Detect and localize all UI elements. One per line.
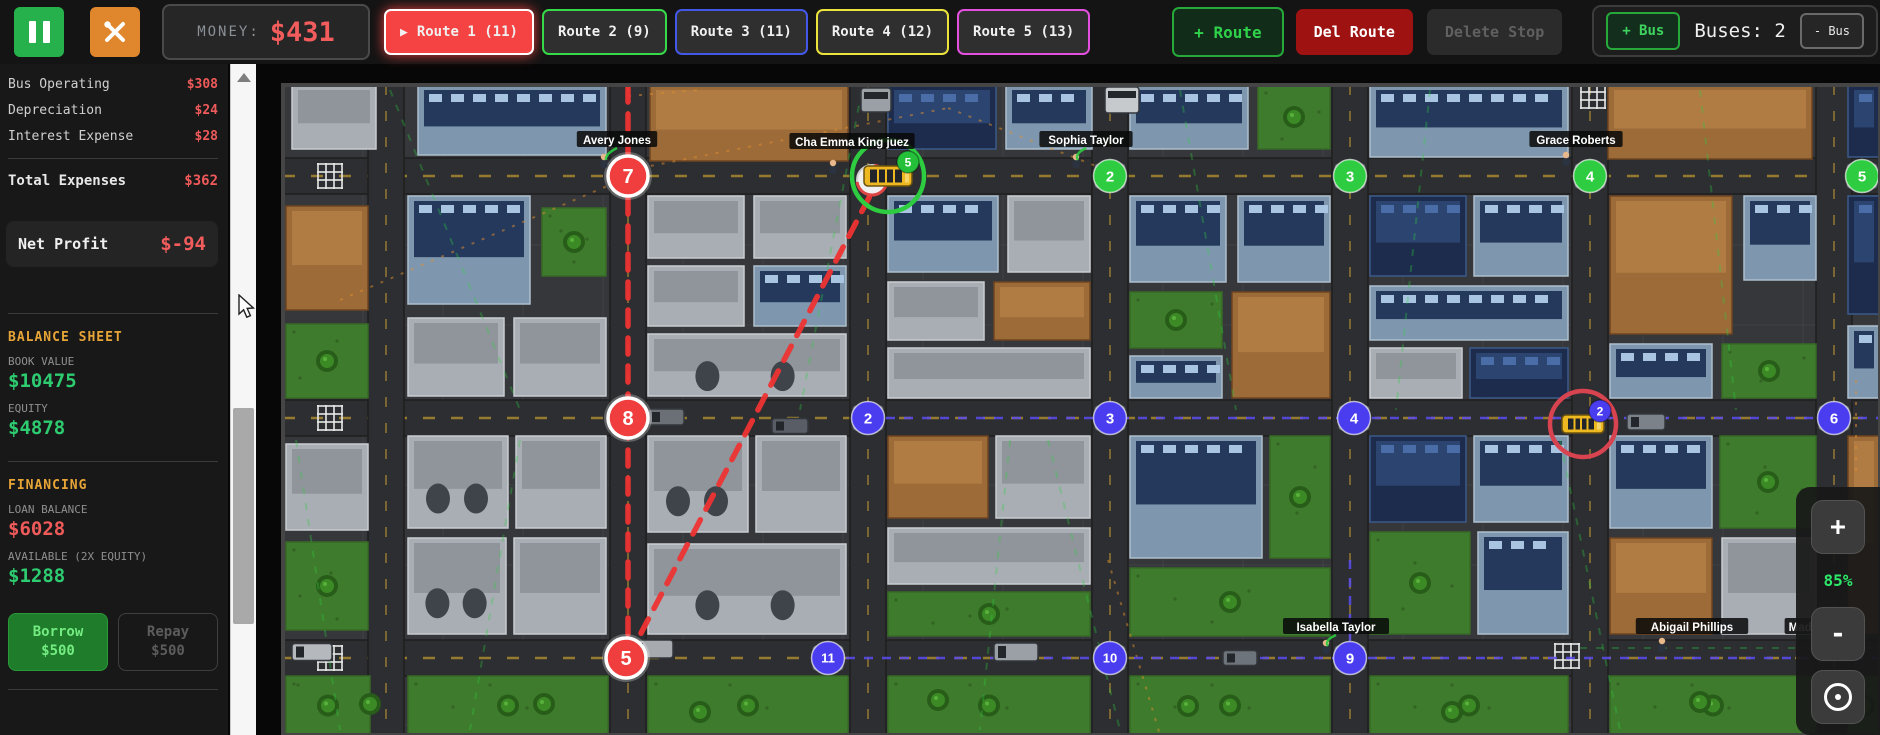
building-tanks xyxy=(408,538,506,634)
route-tab-1[interactable]: ▶Route 1 (11) xyxy=(384,9,534,55)
route-tab-5[interactable]: Route 5 (13) xyxy=(957,9,1090,55)
building-navy xyxy=(1848,85,1880,157)
account-label: LOAN BALANCE xyxy=(8,503,218,516)
building-grass xyxy=(542,208,606,276)
finance-row-value: $24 xyxy=(195,98,218,124)
building-industrial xyxy=(292,85,376,149)
finance-sidebar: Bus Operating$308Depreciation$24Interest… xyxy=(0,64,228,735)
vehicle xyxy=(292,644,332,661)
account-label: AVAILABLE (2X EQUITY) xyxy=(8,550,218,563)
building-industrial xyxy=(514,318,606,396)
svg-text:Sophia Taylor: Sophia Taylor xyxy=(1048,135,1124,147)
zoom-out-button[interactable]: - xyxy=(1811,607,1865,661)
account-value: $1288 xyxy=(8,565,218,587)
building-navy xyxy=(1848,196,1880,314)
map-stop-red-8[interactable]: 8 xyxy=(604,394,652,442)
pedestrian-name-label: Grace Roberts xyxy=(1529,131,1622,147)
vehicle xyxy=(994,643,1038,661)
building-industrial xyxy=(1370,348,1462,398)
map-stop-red-7[interactable]: 7 xyxy=(604,152,652,200)
map-stop-blue-6[interactable]: 6 xyxy=(1818,402,1851,435)
total-expenses-label: Total Expenses xyxy=(8,167,126,195)
svg-text:5: 5 xyxy=(905,155,912,169)
building-brown xyxy=(1610,196,1732,334)
building-grass xyxy=(1130,292,1222,348)
building-office xyxy=(1130,356,1222,398)
building-grass xyxy=(1258,85,1330,149)
finance-row: Bus Operating$308 xyxy=(6,72,220,98)
account-value: $10475 xyxy=(8,370,218,392)
building-brown xyxy=(994,282,1090,340)
finance-row-value: $28 xyxy=(195,124,218,150)
borrow-label: Borrow xyxy=(33,623,84,642)
route-tab-label: Route 4 (12) xyxy=(832,24,933,40)
account-value: $6028 xyxy=(8,518,218,540)
balance-sheet-title: BALANCE SHEET xyxy=(8,330,218,345)
svg-text:10: 10 xyxy=(1103,651,1117,666)
pedestrian-name-label: Isabella Taylor xyxy=(1283,618,1389,634)
borrow-amount: $500 xyxy=(41,642,75,661)
building-grass xyxy=(888,676,1090,735)
route-tab-label: Route 1 (11) xyxy=(417,24,518,40)
svg-text:6: 6 xyxy=(1830,410,1838,427)
money-panel: MONEY: $431 xyxy=(162,4,370,60)
building-industrial xyxy=(888,282,984,340)
svg-text:5: 5 xyxy=(1858,168,1866,185)
building-industrial xyxy=(996,436,1090,518)
svg-text:Abigail Phillips: Abigail Phillips xyxy=(1651,622,1733,634)
svg-text:7: 7 xyxy=(622,166,633,188)
finance-row: Interest Expense$28 xyxy=(6,124,220,150)
divider xyxy=(8,313,218,314)
money-value: $431 xyxy=(270,17,335,48)
vehicle xyxy=(648,409,684,425)
svg-text:4: 4 xyxy=(1586,168,1595,185)
map-stop-green-3[interactable]: 3 xyxy=(1334,160,1367,193)
building-industrial xyxy=(514,538,606,634)
money-label: MONEY: xyxy=(197,24,260,40)
finance-row-label: Bus Operating xyxy=(8,72,110,98)
hammer-wrench-icon xyxy=(102,19,128,45)
vehicle xyxy=(1223,651,1257,666)
zoom-level-label: 85% xyxy=(1824,571,1853,590)
building-brown xyxy=(888,436,988,518)
building-grass xyxy=(888,592,1090,636)
building-grass xyxy=(1610,676,1816,735)
play-icon: ▶ xyxy=(400,25,408,40)
svg-text:2: 2 xyxy=(1597,404,1604,418)
building-grass xyxy=(1722,344,1816,398)
building-industrial xyxy=(648,196,744,258)
financing-items: LOAN BALANCE$6028AVAILABLE (2X EQUITY)$1… xyxy=(6,503,220,587)
map-stop-blue-11[interactable]: 11 xyxy=(812,642,845,675)
game-screen: MONEY: $431 ▶Route 1 (11)Route 2 (9)Rout… xyxy=(0,0,1880,735)
svg-text:3: 3 xyxy=(1106,410,1114,427)
route-tab-2[interactable]: Route 2 (9) xyxy=(542,9,667,55)
vehicle xyxy=(1627,414,1665,430)
finance-row-label: Interest Expense xyxy=(8,124,133,150)
account-label: EQUITY xyxy=(8,402,218,415)
map-stop-green-4[interactable]: 4 xyxy=(1574,160,1607,193)
map-stop-red-5[interactable]: 5 xyxy=(602,634,650,682)
building-office xyxy=(1610,344,1712,398)
building-tanks xyxy=(648,436,748,532)
route-tab-label: Route 2 (9) xyxy=(558,24,651,40)
building-industrial xyxy=(888,348,1090,398)
scrollbar-thumb[interactable] xyxy=(233,408,254,624)
vehicle xyxy=(861,88,891,112)
sidebar-scrollbar[interactable] xyxy=(230,64,256,735)
building-office xyxy=(1610,436,1712,528)
building-brown xyxy=(1232,292,1330,398)
building-grass xyxy=(286,324,368,398)
route-tab-label: Route 5 (13) xyxy=(973,24,1074,40)
add-route-button[interactable]: + Route xyxy=(1172,7,1283,57)
map-stop-blue-4[interactable]: 4 xyxy=(1338,402,1371,435)
pedestrian xyxy=(830,160,837,174)
building-office xyxy=(1474,436,1568,522)
net-profit-value: $-94 xyxy=(160,233,206,255)
pedestrian xyxy=(1563,152,1570,166)
building-office xyxy=(1370,286,1568,340)
mouse-cursor xyxy=(237,294,259,320)
scroll-up-button[interactable] xyxy=(231,64,256,90)
building-industrial xyxy=(516,436,606,528)
svg-text:Avery Jones: Avery Jones xyxy=(583,135,651,147)
svg-text:Grace Roberts: Grace Roberts xyxy=(1536,135,1615,147)
finance-row: Depreciation$24 xyxy=(6,98,220,124)
building-grass xyxy=(286,542,368,630)
pedestrian-name-label: Sophia Taylor xyxy=(1039,131,1132,147)
svg-text:Isabella Taylor: Isabella Taylor xyxy=(1296,622,1376,634)
svg-text:5: 5 xyxy=(620,648,631,670)
building-industrial xyxy=(648,266,744,326)
svg-text:2: 2 xyxy=(864,410,872,427)
building-industrial xyxy=(756,436,846,532)
building-office xyxy=(1848,326,1880,398)
city-map: 785234523461110952Avery JonesCha Emma Ki… xyxy=(283,85,1880,735)
pedestrian-name-label: Avery Jones xyxy=(577,131,657,147)
total-expenses-row: Total Expenses $362 xyxy=(6,167,220,195)
delete-route-button[interactable]: Del Route xyxy=(1296,9,1413,55)
building-brown xyxy=(1608,85,1812,159)
building-office xyxy=(1744,196,1816,280)
building-office xyxy=(408,196,530,304)
zoom-in-button[interactable]: + xyxy=(1811,500,1865,554)
route-tab-label: Route 3 (11) xyxy=(691,24,792,40)
building-grass xyxy=(648,676,848,735)
building-grass xyxy=(1270,436,1330,558)
recenter-button[interactable] xyxy=(1811,670,1865,724)
map-stop-blue-10[interactable]: 10 xyxy=(1094,642,1127,675)
map-stop-green-2[interactable]: 2 xyxy=(1094,160,1127,193)
pause-button[interactable] xyxy=(14,7,64,57)
building-grass xyxy=(408,676,608,735)
divider xyxy=(8,158,218,159)
add-bus-button[interactable]: + Bus xyxy=(1606,12,1680,50)
building-brown xyxy=(286,206,368,310)
net-profit-label: Net Profit xyxy=(18,235,108,253)
svg-text:9: 9 xyxy=(1346,650,1354,667)
svg-text:4: 4 xyxy=(1350,410,1359,427)
building-office xyxy=(1238,196,1330,282)
pause-icon xyxy=(29,21,50,43)
route-tabs: ▶Route 1 (11)Route 2 (9)Route 3 (11)Rout… xyxy=(376,9,1090,55)
map-stop-blue-3[interactable]: 3 xyxy=(1094,402,1127,435)
repay-label: Repay xyxy=(147,623,189,642)
finance-row-value: $308 xyxy=(187,72,218,98)
delete-stop-button[interactable]: Delete Stop xyxy=(1427,9,1562,55)
building-brown xyxy=(650,85,848,161)
zoom-control-panel: + 85% - xyxy=(1796,487,1880,735)
map-stop-blue-9[interactable]: 9 xyxy=(1334,642,1367,675)
total-expenses-value: $362 xyxy=(184,167,218,195)
tools-button[interactable] xyxy=(90,7,140,57)
loan-buttons: Borrow $500 Repay $500 xyxy=(8,613,218,671)
map-stop-blue-2[interactable]: 2 xyxy=(852,402,885,435)
pedestrian-name-label: Abigail Phillips xyxy=(1636,618,1748,634)
building-navy xyxy=(1370,436,1466,522)
account-value: $4878 xyxy=(8,417,218,439)
building-industrial xyxy=(1008,196,1090,272)
divider xyxy=(8,689,218,690)
divider xyxy=(8,461,218,462)
expense-rows: Bus Operating$308Depreciation$24Interest… xyxy=(6,72,220,150)
net-profit-box: Net Profit $-94 xyxy=(6,221,218,267)
repay-button[interactable]: Repay $500 xyxy=(118,613,218,671)
svg-text:2: 2 xyxy=(1106,168,1114,185)
building-office xyxy=(1130,436,1262,558)
route-tab-3[interactable]: Route 3 (11) xyxy=(675,9,808,55)
bus-control-panel: + Bus Buses: 2 - Bus xyxy=(1592,5,1878,57)
account-label: BOOK VALUE xyxy=(8,355,218,368)
svg-text:11: 11 xyxy=(821,651,835,666)
vehicle xyxy=(1105,87,1139,113)
vehicle xyxy=(772,419,808,434)
up-arrow-icon xyxy=(237,73,251,82)
building-office xyxy=(754,266,846,326)
building-industrial xyxy=(408,318,504,396)
finance-row-label: Depreciation xyxy=(8,98,102,124)
svg-text:8: 8 xyxy=(622,408,633,430)
map-viewport[interactable]: 785234523461110952Avery JonesCha Emma Ki… xyxy=(283,85,1880,735)
balance-sheet-items: BOOK VALUE$10475EQUITY$4878 xyxy=(6,355,220,439)
top-toolbar: MONEY: $431 ▶Route 1 (11)Route 2 (9)Rout… xyxy=(0,0,1880,64)
remove-bus-button[interactable]: - Bus xyxy=(1800,13,1864,49)
buses-count-label: Buses: 2 xyxy=(1694,20,1786,42)
building-tanks xyxy=(408,436,508,528)
borrow-button[interactable]: Borrow $500 xyxy=(8,613,108,671)
route-tab-4[interactable]: Route 4 (12) xyxy=(816,9,949,55)
pedestrian xyxy=(1659,638,1666,652)
building-office xyxy=(1474,196,1568,276)
building-navy xyxy=(1470,348,1568,398)
svg-text:3: 3 xyxy=(1346,168,1354,185)
map-stop-green-5[interactable]: 5 xyxy=(1846,160,1879,193)
building-grass xyxy=(286,676,370,735)
building-tanks xyxy=(648,334,846,396)
building-industrial xyxy=(888,528,1090,584)
repay-amount: $500 xyxy=(151,642,185,661)
building-office xyxy=(1478,532,1568,634)
target-icon xyxy=(1824,683,1852,711)
svg-text:Cha Emma King juez: Cha Emma King juez xyxy=(795,137,909,149)
building-grass xyxy=(1130,676,1330,735)
building-grass xyxy=(1370,676,1568,735)
financing-title: FINANCING xyxy=(8,478,218,493)
pedestrian-name-label: Cha Emma King juez xyxy=(789,133,914,149)
